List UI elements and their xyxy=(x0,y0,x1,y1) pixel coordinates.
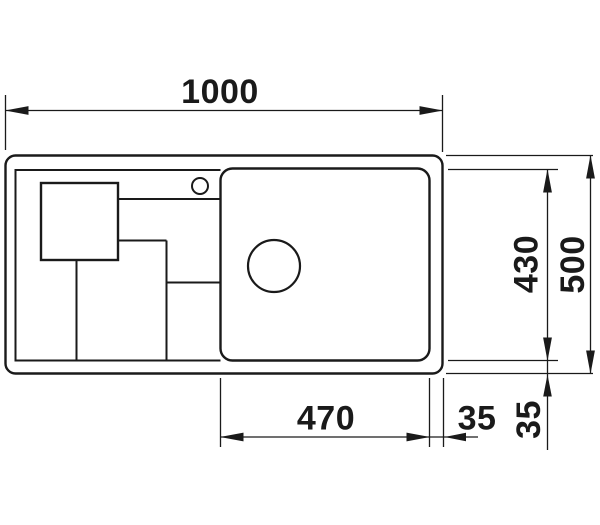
drain-hole-icon xyxy=(248,240,300,292)
dim-label-inner-depth: 430 xyxy=(508,235,546,293)
technical-drawing-canvas: 1000 430 500 470 35 35 xyxy=(0,0,600,525)
dimension-labels: 1000 430 500 470 35 35 xyxy=(181,73,592,439)
dim-label-overall-width: 1000 xyxy=(181,73,259,111)
dim-label-rim-right: 35 xyxy=(458,400,497,438)
main-bowl-outline xyxy=(221,169,430,361)
rim-bottom-arrowhead xyxy=(543,375,552,397)
sink-dimension-diagram: 1000 430 500 470 35 35 xyxy=(0,0,600,525)
dim-label-bowl-width: 470 xyxy=(297,400,355,438)
dim-label-overall-depth: 500 xyxy=(554,235,592,293)
tap-hole-icon xyxy=(192,178,208,194)
dim-label-rim-bottom: 35 xyxy=(510,400,548,439)
sink-outline-group xyxy=(6,156,443,374)
outer-sink-outline xyxy=(6,156,443,374)
cutting-board-outline xyxy=(41,183,118,260)
